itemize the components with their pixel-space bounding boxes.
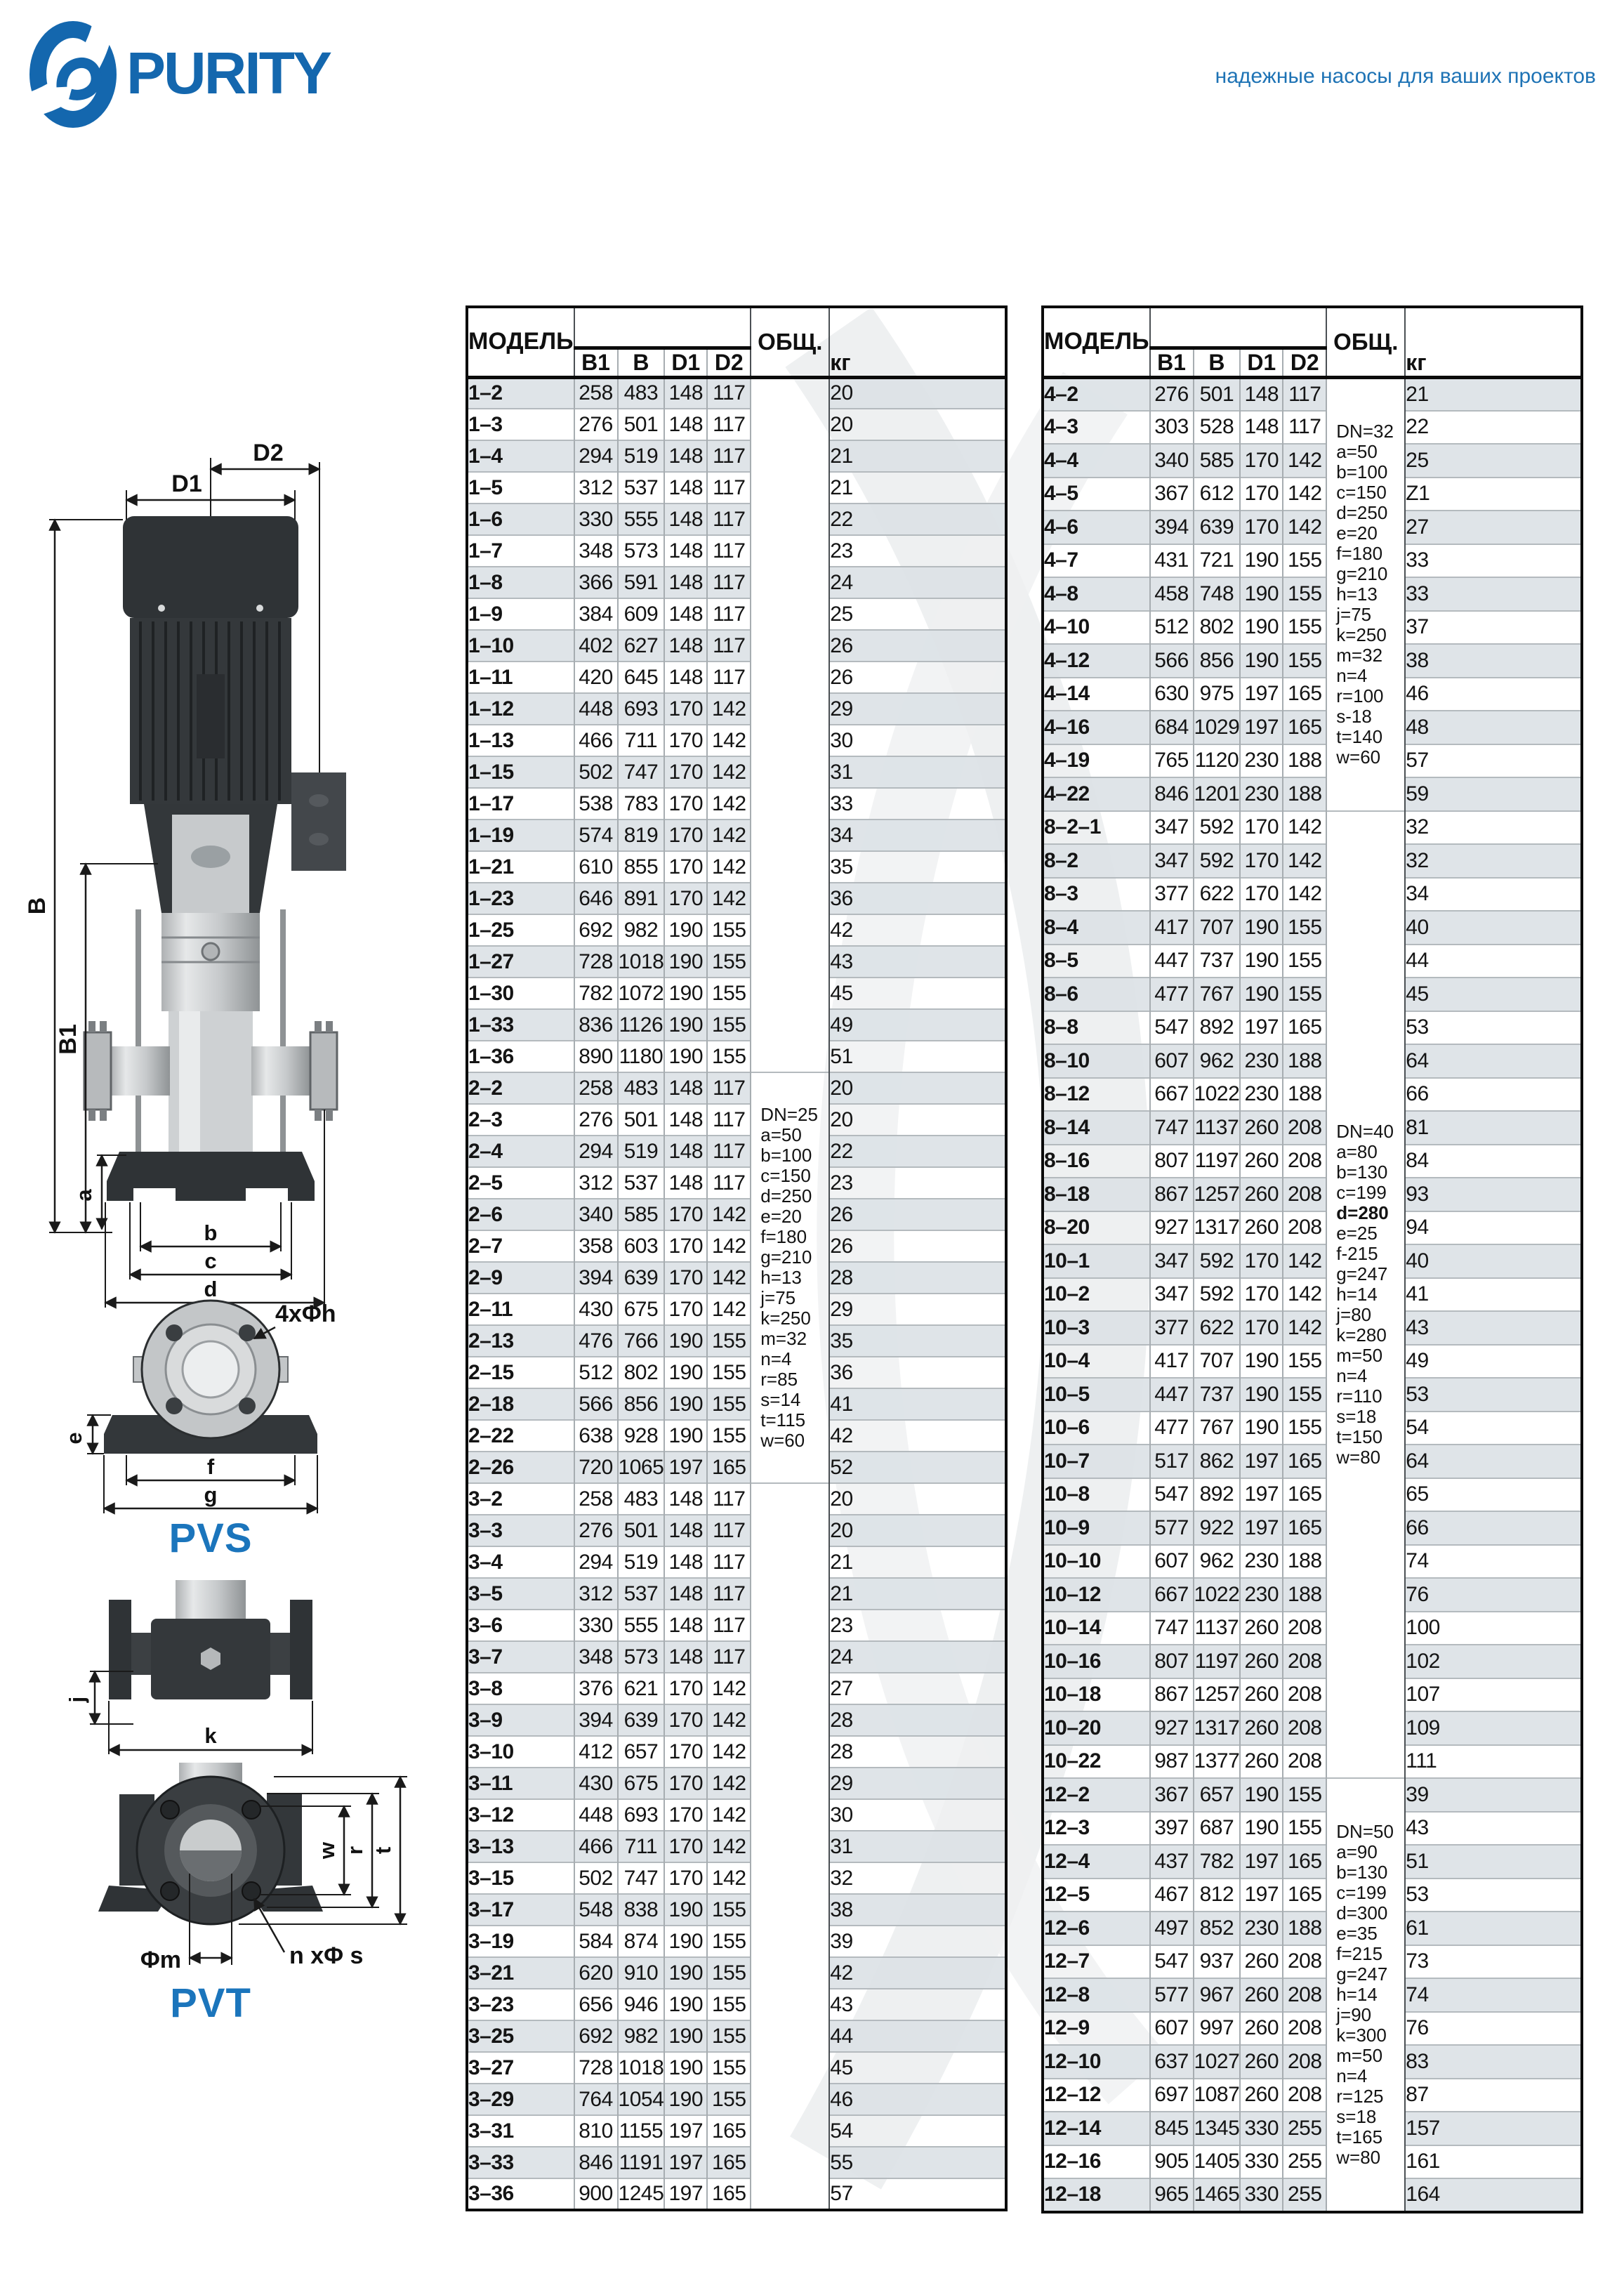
- d1-cell: 170: [664, 725, 707, 756]
- table-row: 2–735860317014226: [467, 1230, 1006, 1262]
- model-cell: 10–9: [1043, 1511, 1150, 1545]
- kg-cell: 27: [829, 1673, 1006, 1704]
- d1-cell: 170: [664, 1230, 707, 1262]
- d1-cell: 260: [1240, 1211, 1283, 1245]
- table-row: 10–147471137260208100: [1043, 1612, 1582, 1645]
- kg-cell: 59: [1405, 777, 1582, 811]
- b1-cell: 377: [1150, 1311, 1194, 1345]
- table-row: 4–19765112023018857: [1043, 744, 1582, 778]
- d1-cell: 148: [664, 1641, 707, 1673]
- b1-cell: 517: [1150, 1445, 1194, 1478]
- b1-cell: 348: [574, 1641, 618, 1673]
- b-cell: 1087: [1194, 2079, 1241, 2112]
- dim-label-b1: B1: [55, 1024, 81, 1054]
- model-cell: 1–12: [467, 693, 574, 725]
- d1-cell: 260: [1240, 1612, 1283, 1645]
- b-cell: 1191: [618, 2147, 665, 2178]
- model-cell: 12–7: [1043, 1945, 1150, 1979]
- model-cell: 1–33: [467, 1009, 574, 1041]
- table-row: 10–337762217014243: [1043, 1311, 1582, 1345]
- model-cell: 12–14: [1043, 2112, 1150, 2145]
- d1-cell: 148: [664, 1515, 707, 1546]
- d2-cell: 165: [1283, 678, 1326, 711]
- common-dimension-line: d=280: [1336, 1203, 1404, 1223]
- b-cell: 767: [1194, 1412, 1241, 1445]
- model-cell: 1–15: [467, 756, 574, 788]
- b-cell: 609: [618, 598, 665, 630]
- d2-cell: 208: [1283, 2045, 1326, 2079]
- table-row: 12–189651465330255164: [1043, 2178, 1582, 2212]
- kg-cell: 53: [1405, 1378, 1582, 1412]
- kg-cell: 45: [829, 2052, 1006, 2084]
- model-cell: 8–6: [1043, 978, 1150, 1011]
- table-row: 3–33846119119716555: [467, 2147, 1006, 2178]
- b1-cell: 607: [1150, 1545, 1194, 1579]
- d1-cell: 170: [664, 1199, 707, 1230]
- kg-cell: 45: [1405, 978, 1582, 1011]
- table-row: 3–1754883819015538: [467, 1894, 1006, 1926]
- d1-cell: 230: [1240, 1044, 1283, 1078]
- table-row: 10–957792219716566: [1043, 1511, 1582, 1545]
- b-cell: 591: [618, 567, 665, 598]
- b-cell: 967: [1194, 1978, 1241, 2012]
- dim-label-j: j: [65, 1697, 89, 1704]
- model-cell: 12–2: [1043, 1778, 1150, 1812]
- b1-cell: 347: [1150, 844, 1194, 878]
- b1-cell: 303: [1150, 411, 1194, 445]
- table-row: 12–649785223018861: [1043, 1912, 1582, 1945]
- model-cell: 8–3: [1043, 878, 1150, 912]
- b-cell: 501: [618, 1515, 665, 1546]
- b1-cell: 358: [574, 1230, 618, 1262]
- common-dimension-line: DN=40: [1336, 1121, 1404, 1142]
- model-cell: 1–25: [467, 914, 574, 946]
- d2-cell: 117: [707, 1483, 751, 1515]
- common-dimension-line: m=50: [1336, 1346, 1404, 1366]
- model-cell: 3–11: [467, 1768, 574, 1799]
- b-cell: 1377: [1194, 1745, 1241, 1779]
- d1-cell: 230: [1240, 777, 1283, 811]
- b-cell: 856: [1194, 644, 1241, 678]
- b1-column-header: B1: [1150, 348, 1194, 377]
- table-row: 1–836659114811724: [467, 567, 1006, 598]
- table-row: 4–743172119015533: [1043, 544, 1582, 578]
- b-cell: 707: [1194, 911, 1241, 945]
- d2-cell: 117: [707, 567, 751, 598]
- model-cell: 10–8: [1043, 1478, 1150, 1512]
- table-row: 4–330352814811722: [1043, 411, 1582, 445]
- d2-cell: 142: [707, 1230, 751, 1262]
- kg-cell: 52: [829, 1452, 1006, 1483]
- b1-cell: 366: [574, 567, 618, 598]
- d1-cell: 148: [664, 598, 707, 630]
- table-row: 3–2569298219015544: [467, 2020, 1006, 2052]
- b1-cell: 330: [574, 504, 618, 535]
- header-spacer: [574, 307, 751, 348]
- d2-cell: 142: [707, 1673, 751, 1704]
- kg-cell: 74: [1405, 1545, 1582, 1579]
- d2-cell: 155: [1283, 945, 1326, 978]
- table-row: 3–1143067517014229: [467, 1768, 1006, 1799]
- b1-cell: 577: [1150, 1511, 1194, 1545]
- d2-cell: 142: [707, 1294, 751, 1325]
- b-cell: 537: [618, 1167, 665, 1199]
- kg-cell: 33: [1405, 577, 1582, 611]
- b-cell: 862: [1194, 1445, 1241, 1478]
- kg-cell: 74: [1405, 1978, 1582, 2012]
- common-dimension-line: b=100: [1336, 462, 1404, 482]
- d1-cell: 148: [664, 504, 707, 535]
- b1-cell: 402: [574, 630, 618, 662]
- d1-cell: 148: [664, 567, 707, 598]
- d1-cell: 170: [664, 1768, 707, 1799]
- table-row: 3–939463917014228: [467, 1704, 1006, 1736]
- kg-cell: 22: [829, 504, 1006, 535]
- b-cell: 910: [618, 1957, 665, 1989]
- d2-cell: 155: [707, 1325, 751, 1357]
- table-row: 1–27728101819015543: [467, 946, 1006, 978]
- d1-cell: 190: [664, 1957, 707, 1989]
- b1-cell: 728: [574, 2052, 618, 2084]
- common-dimensions-cell: DN=25a=50b=100c=150d=250e=20f=180g=210h=…: [751, 1072, 829, 1483]
- table-row: 1–1040262714811726: [467, 630, 1006, 662]
- kg-cell: 44: [1405, 945, 1582, 978]
- d2-cell: 208: [1283, 1745, 1326, 1779]
- b-cell: 1345: [1194, 2112, 1241, 2145]
- kg-cell: 107: [1405, 1678, 1582, 1712]
- kg-cell: 51: [1405, 1845, 1582, 1879]
- d1-cell: 190: [664, 914, 707, 946]
- b1-cell: 836: [574, 1009, 618, 1041]
- table-row: 3–633055514811723: [467, 1610, 1006, 1641]
- d2-cell: 208: [1283, 1645, 1326, 1678]
- d1-cell: 190: [1240, 611, 1283, 645]
- bolt-callout-pvt: n xΦ s: [289, 1942, 363, 1969]
- b1-cell: 420: [574, 662, 618, 693]
- table-row: 1–531253714811721: [467, 472, 1006, 504]
- d2-cell: 208: [1283, 1711, 1326, 1745]
- model-cell: 4–19: [1043, 744, 1150, 778]
- common-dimension-line: h=14: [1336, 1284, 1404, 1305]
- d2-cell: 188: [1283, 1545, 1326, 1579]
- model-cell: 1–36: [467, 1041, 574, 1072]
- model-cell: 10–20: [1043, 1711, 1150, 1745]
- kg-cell: 28: [829, 1736, 1006, 1768]
- dimension-table-left-mount: МОДЕЛЬОБЩ.кгB1BD1D21–2258483148117201–32…: [466, 305, 1008, 2211]
- b1-cell: 638: [574, 1420, 618, 1452]
- d1-cell: 197: [1240, 1011, 1283, 1045]
- kg-cell: 20: [829, 1104, 1006, 1136]
- kg-cell: 37: [1405, 611, 1582, 645]
- b-cell: 856: [618, 1388, 665, 1420]
- table-row: 1–36890118019015551: [467, 1041, 1006, 1072]
- table-row: 8–2–1347592170142DN=40a=80b=130c=199d=28…: [1043, 811, 1582, 845]
- kg-cell: 43: [1405, 1311, 1582, 1345]
- table-row: 8–854789219716553: [1043, 1011, 1582, 1045]
- d1-cell: 170: [664, 1262, 707, 1294]
- d1-cell: 170: [664, 1831, 707, 1862]
- d2-cell: 165: [707, 2115, 751, 2147]
- table-row: 1–1753878317014233: [467, 788, 1006, 820]
- kg-cell: 66: [1405, 1078, 1582, 1112]
- b-cell: 1054: [618, 2084, 665, 2115]
- d2-cell: 255: [1283, 2112, 1326, 2145]
- common-dimension-line: a=90: [1336, 1842, 1404, 1862]
- d1-cell: 190: [664, 1325, 707, 1357]
- kg-cell: 164: [1405, 2178, 1582, 2212]
- common-dimension-line: f-215: [1336, 1244, 1404, 1264]
- b-cell: 675: [618, 1294, 665, 1325]
- common-dimension-line: t=115: [760, 1410, 828, 1430]
- b-cell: 711: [618, 1831, 665, 1862]
- table-row: 3–734857314811724: [467, 1641, 1006, 1673]
- d1-cell: 170: [1240, 444, 1283, 478]
- b1-cell: 376: [574, 1673, 618, 1704]
- model-cell: 12–6: [1043, 1912, 1150, 1945]
- b1-cell: 258: [574, 377, 618, 409]
- d1-cell: 148: [1240, 411, 1283, 445]
- b-cell: 693: [618, 1799, 665, 1831]
- common-dimension-line: a=50: [760, 1125, 828, 1145]
- common-dimension-line: b=130: [1336, 1162, 1404, 1183]
- common-dimension-line: s-18: [1336, 706, 1404, 727]
- b1-cell: 502: [574, 1862, 618, 1894]
- d1-cell: 197: [1240, 1845, 1283, 1879]
- d1-cell: 170: [1240, 1278, 1283, 1312]
- d1-cell: 190: [1240, 911, 1283, 945]
- table-row: 8–1060796223018864: [1043, 1044, 1582, 1078]
- model-cell: 10–12: [1043, 1578, 1150, 1612]
- b1-cell: 684: [1150, 711, 1194, 744]
- b1-cell: 312: [574, 472, 618, 504]
- table-row: 8–12667102223018866: [1043, 1078, 1582, 1112]
- b-cell: 982: [618, 914, 665, 946]
- kg-cell: 41: [829, 1388, 1006, 1420]
- model-cell: 8–4: [1043, 911, 1150, 945]
- model-cell: 12–3: [1043, 1812, 1150, 1846]
- common-dimension-line: n=4: [1336, 666, 1404, 686]
- b-cell: 892: [1194, 1011, 1241, 1045]
- model-cell: 4–5: [1043, 478, 1150, 511]
- b-cell: 622: [1194, 878, 1241, 912]
- table-row: 8–20927131726020894: [1043, 1211, 1582, 1245]
- d1-cell: 170: [664, 756, 707, 788]
- model-cell: 8–18: [1043, 1178, 1150, 1211]
- d1-cell: 148: [664, 1167, 707, 1199]
- pvs-series-label: PVS: [169, 1515, 252, 1561]
- model-cell: 1–5: [467, 472, 574, 504]
- common-dimension-line: c=199: [1336, 1883, 1404, 1903]
- d2-cell: 142: [707, 1704, 751, 1736]
- table-row: 10–1060796223018874: [1043, 1545, 1582, 1579]
- b-cell: 1317: [1194, 1711, 1241, 1745]
- b1-cell: 630: [1150, 678, 1194, 711]
- common-dimension-line: a=80: [1336, 1142, 1404, 1162]
- model-cell: 8–14: [1043, 1111, 1150, 1145]
- b-cell: 1018: [618, 2052, 665, 2084]
- b-cell: 1029: [1194, 711, 1241, 744]
- kg-cell: 46: [1405, 678, 1582, 711]
- b-cell: 639: [618, 1704, 665, 1736]
- model-cell: 1–19: [467, 820, 574, 851]
- model-cell: 10–14: [1043, 1612, 1150, 1645]
- common-dimension-line: s=18: [1336, 1407, 1404, 1427]
- model-cell: 3–21: [467, 1957, 574, 1989]
- common-dimension-line: s=14: [760, 1390, 828, 1410]
- d2-cell: 165: [1283, 1879, 1326, 1912]
- b1-cell: 384: [574, 598, 618, 630]
- catalog-page: { "header": { "brand": "PURITY", "taglin…: [0, 0, 1624, 2276]
- common-dimension-line: e=20: [1336, 523, 1404, 544]
- b-cell: 675: [618, 1768, 665, 1799]
- b1-cell: 347: [1150, 811, 1194, 845]
- d2-cell: 255: [1283, 2178, 1326, 2212]
- d2-cell: 142: [707, 1799, 751, 1831]
- kg-cell: 41: [1405, 1278, 1582, 1312]
- table-row: 1–633055514811722: [467, 504, 1006, 535]
- kg-cell: 23: [829, 1167, 1006, 1199]
- b-cell: 555: [618, 1610, 665, 1641]
- b1-cell: 667: [1150, 1578, 1194, 1612]
- d2-cell: 117: [707, 504, 751, 535]
- d1-cell: 148: [664, 1072, 707, 1104]
- common-dimension-line: r=125: [1336, 2086, 1404, 2107]
- d2-cell: 155: [1283, 644, 1326, 678]
- table-row: 10–647776719015554: [1043, 1412, 1582, 1445]
- b1-cell: 547: [1150, 1011, 1194, 1045]
- table-row: 3–1346671117014231: [467, 1831, 1006, 1862]
- d2-cell: 155: [1283, 1812, 1326, 1846]
- table-row: 1–1346671117014230: [467, 725, 1006, 756]
- d1-cell: 230: [1240, 744, 1283, 778]
- b1-cell: 497: [1150, 1912, 1194, 1945]
- d2-cell: 117: [707, 440, 751, 472]
- table-row: 4–2276501148117DN=32a=50b=100c=150d=250e…: [1043, 377, 1582, 411]
- d2-cell: 155: [1283, 911, 1326, 945]
- kg-cell: 25: [1405, 444, 1582, 478]
- common-dimension-line: f=180: [1336, 544, 1404, 564]
- d2-cell: 142: [1283, 1278, 1326, 1312]
- d2-cell: 142: [707, 756, 751, 788]
- model-cell: 3–23: [467, 1989, 574, 2020]
- b-cell: 1022: [1194, 1578, 1241, 1612]
- d2-cell: 142: [1283, 1244, 1326, 1278]
- common-dimension-line: b=130: [1336, 1862, 1404, 1883]
- kg-cell: 44: [829, 2020, 1006, 2052]
- d1-cell: 148: [664, 1610, 707, 1641]
- b1-cell: 900: [574, 2178, 618, 2210]
- table-row: 4–22846120123018859: [1043, 777, 1582, 811]
- kg-cell: 102: [1405, 1645, 1582, 1678]
- pump-front-view: D2 D1: [28, 440, 346, 1308]
- b1-cell: 502: [574, 756, 618, 788]
- kg-cell: 161: [1405, 2145, 1582, 2179]
- b-cell: 519: [618, 1546, 665, 1578]
- model-cell: 2–5: [467, 1167, 574, 1199]
- d1-cell: 230: [1240, 1912, 1283, 1945]
- model-cell: 8–16: [1043, 1145, 1150, 1178]
- b1-cell: 397: [1150, 1812, 1194, 1846]
- b1-cell: 566: [1150, 644, 1194, 678]
- d2-cell: 208: [1283, 2079, 1326, 2112]
- table-row: 12–546781219716553: [1043, 1879, 1582, 1912]
- model-cell: 1–10: [467, 630, 574, 662]
- table-row: 8–18867125726020893: [1043, 1178, 1582, 1211]
- model-cell: 8–2–1: [1043, 811, 1150, 845]
- kg-column-header: кг: [1405, 307, 1582, 377]
- d1-cell: 148: [664, 1136, 707, 1167]
- b-cell: 537: [618, 472, 665, 504]
- table-row: 3–225848314811720: [467, 1483, 1006, 1515]
- d2-cell: 165: [707, 1452, 751, 1483]
- common-dimension-line: r=100: [1336, 686, 1404, 706]
- d2-cell: 155: [707, 1989, 751, 2020]
- table-row: 4–845874819015533: [1043, 577, 1582, 611]
- d1-cell: 170: [664, 1294, 707, 1325]
- model-cell: 3–17: [467, 1894, 574, 1926]
- common-dimension-line: f=215: [1336, 1944, 1404, 1964]
- b1-cell: 367: [1150, 1778, 1194, 1812]
- b1-cell: 348: [574, 535, 618, 567]
- b-cell: 922: [1194, 1511, 1241, 1545]
- b1-cell: 467: [1150, 1879, 1194, 1912]
- b-cell: 555: [618, 504, 665, 535]
- model-cell: 10–7: [1043, 1445, 1150, 1478]
- model-cell: 3–33: [467, 2147, 574, 2178]
- brand-logo: PURITY: [29, 18, 330, 128]
- table-row: 1–429451914811721: [467, 440, 1006, 472]
- model-cell: 2–3: [467, 1104, 574, 1136]
- table-row: 2–2258483148117DN=25a=50b=100c=150d=250e…: [467, 1072, 1006, 1104]
- d1-cell: 260: [1240, 1678, 1283, 1712]
- b-cell: 645: [618, 662, 665, 693]
- d2-cell: 208: [1283, 1678, 1326, 1712]
- model-cell: 10–2: [1043, 1278, 1150, 1312]
- common-dimension-line: g=247: [1336, 1964, 1404, 1985]
- b1-cell: 584: [574, 1926, 618, 1957]
- b-cell: 962: [1194, 1545, 1241, 1579]
- kg-cell: 21: [829, 440, 1006, 472]
- common-dimension-line: t=150: [1336, 1427, 1404, 1447]
- b-cell: 483: [618, 377, 665, 409]
- b-cell: 1201: [1194, 777, 1241, 811]
- d2-cell: 142: [707, 820, 751, 851]
- common-dimension-line: f=180: [760, 1227, 828, 1247]
- kg-cell: 32: [1405, 811, 1582, 845]
- model-cell: 1–27: [467, 946, 574, 978]
- kg-cell: 30: [829, 1799, 1006, 1831]
- kg-cell: 87: [1405, 2079, 1582, 2112]
- b1-cell: 437: [1150, 1845, 1194, 1879]
- model-cell: 1–30: [467, 978, 574, 1009]
- kg-cell: Z1: [1405, 478, 1582, 511]
- kg-cell: 81: [1405, 1111, 1582, 1145]
- b1-cell: 927: [1150, 1711, 1194, 1745]
- common-dimension-line: w=60: [1336, 747, 1404, 768]
- d1-cell: 170: [664, 1673, 707, 1704]
- b-cell: 627: [618, 630, 665, 662]
- model-cell: 3–25: [467, 2020, 574, 2052]
- b1-cell: 412: [574, 1736, 618, 1768]
- table-row: 1–30782107219015545: [467, 978, 1006, 1009]
- b-cell: 621: [618, 1673, 665, 1704]
- kg-cell: 22: [1405, 411, 1582, 445]
- d2-cell: 117: [707, 472, 751, 504]
- common-dimension-line: d=300: [1336, 1903, 1404, 1923]
- kg-cell: 54: [1405, 1412, 1582, 1445]
- table-row: 10–188671257260208107: [1043, 1678, 1582, 1712]
- b1-cell: 417: [1150, 1345, 1194, 1379]
